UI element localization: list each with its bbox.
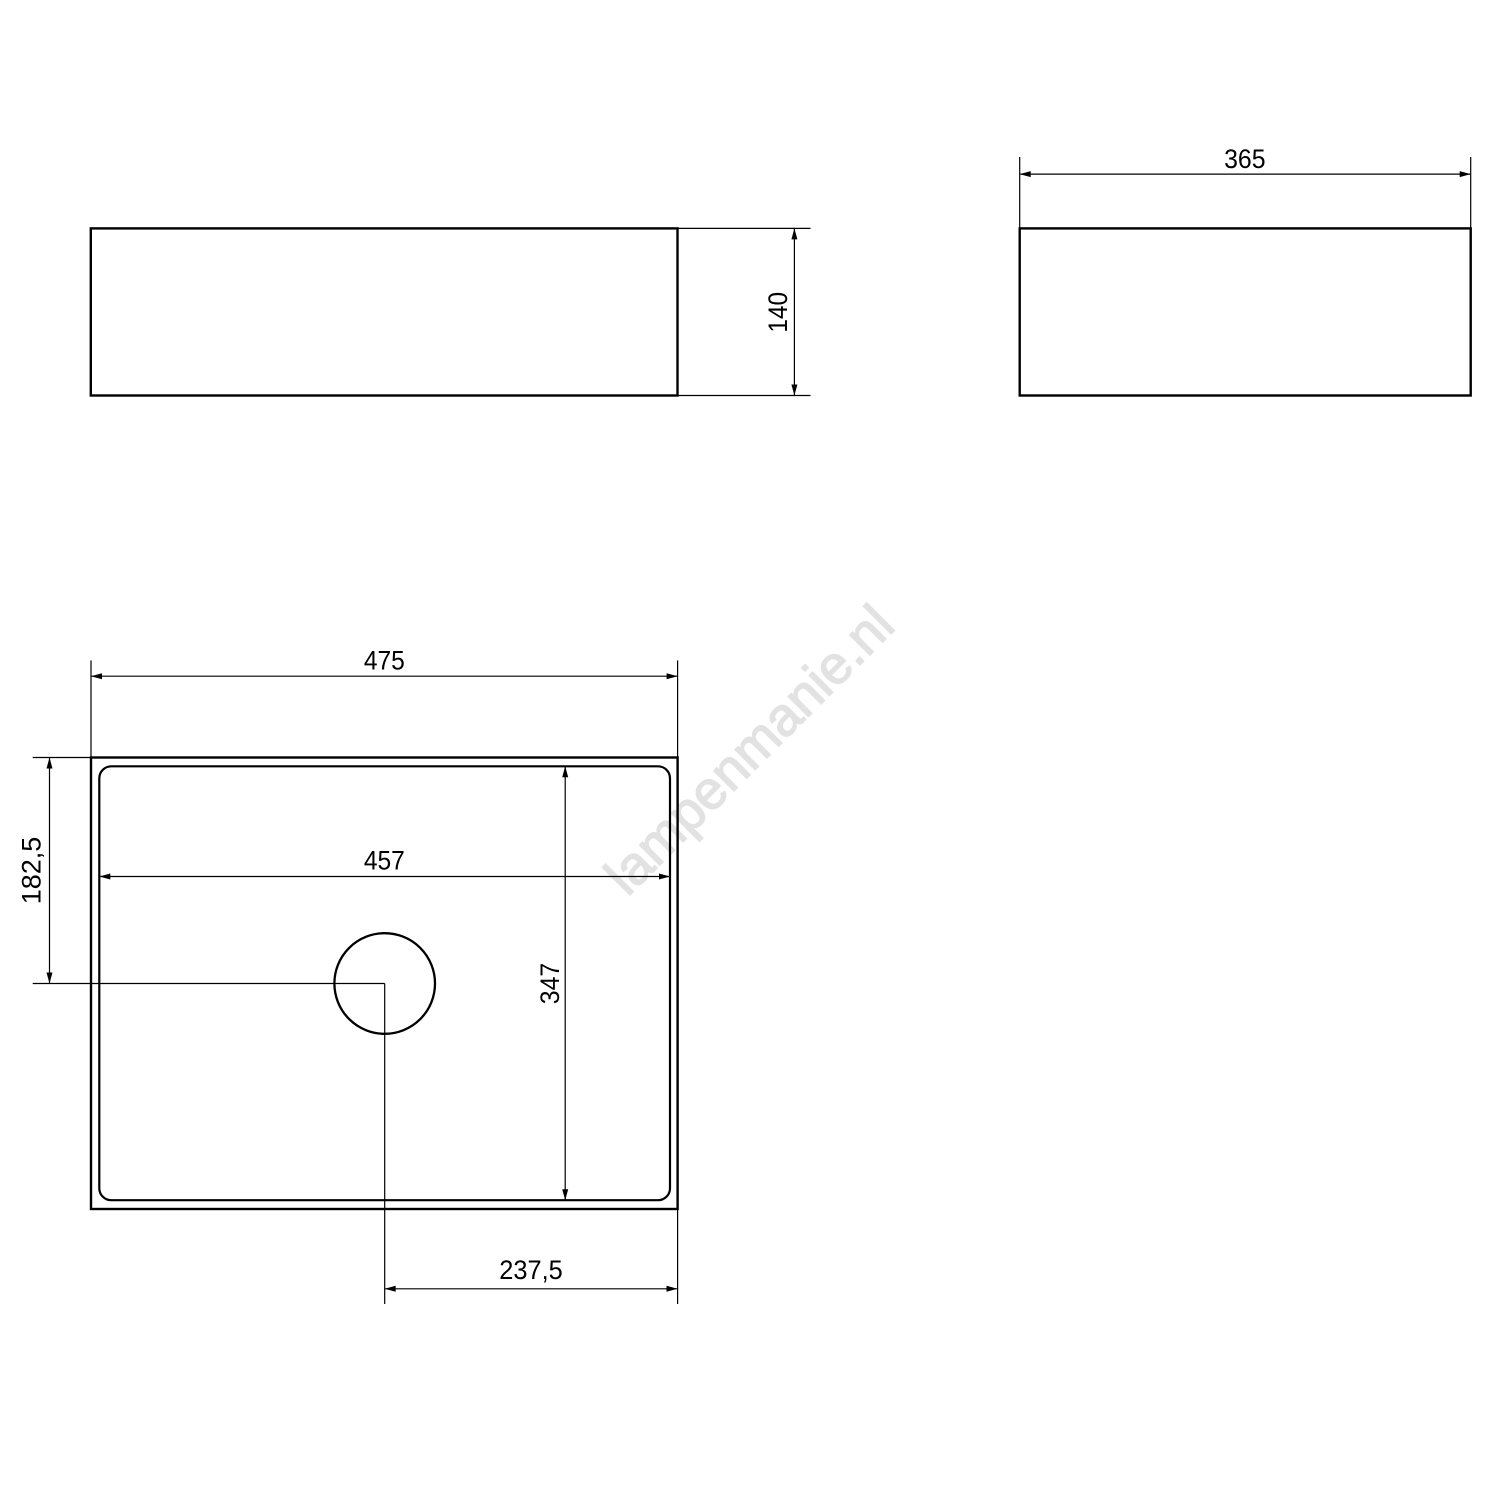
svg-text:347: 347 — [536, 963, 565, 1004]
svg-text:365: 365 — [1224, 145, 1265, 174]
svg-text:475: 475 — [364, 647, 405, 676]
svg-text:457: 457 — [364, 847, 405, 876]
svg-text:182,5: 182,5 — [17, 837, 47, 905]
svg-text:237,5: 237,5 — [499, 1254, 562, 1285]
svg-text:140: 140 — [764, 292, 793, 333]
